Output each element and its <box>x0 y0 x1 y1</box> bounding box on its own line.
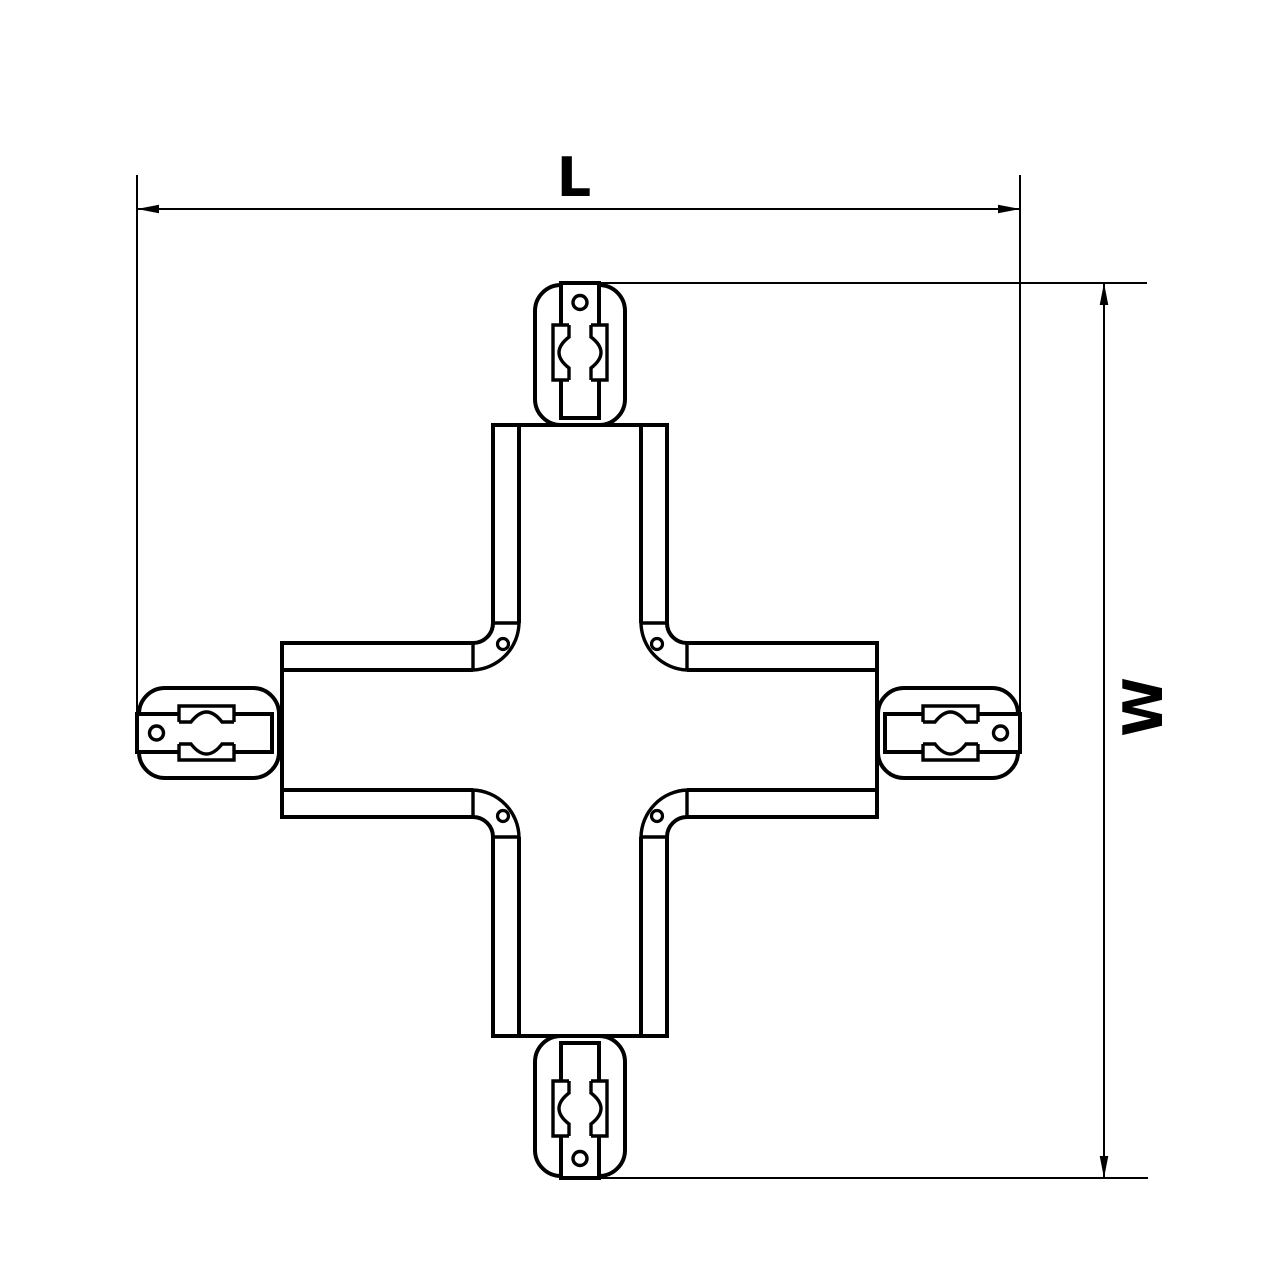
arrowhead-left <box>137 205 159 214</box>
contact-slot-right <box>923 744 978 760</box>
technical-drawing: L W <box>0 0 1280 1280</box>
connector-bottom <box>535 1036 625 1178</box>
dimension-label-W: W <box>1112 677 1175 737</box>
contact-slot-left <box>923 706 978 722</box>
cross-body <box>282 425 877 1036</box>
drawing-lines <box>137 175 1148 1178</box>
arrowhead-down <box>1100 1156 1109 1178</box>
connector-right <box>878 688 1020 778</box>
cross-outline <box>282 425 877 1036</box>
contact-slot-right <box>179 706 234 722</box>
arrowhead-right <box>998 205 1020 214</box>
dimension-label-L: L <box>557 146 591 209</box>
contact-slot-left <box>591 1081 607 1136</box>
tongue-hole <box>573 1152 587 1166</box>
arrowhead-up <box>1100 283 1109 305</box>
tongue-hole <box>150 726 164 740</box>
contact-slot-left <box>179 744 234 760</box>
connector-left <box>137 688 279 778</box>
contact-slot-left <box>553 325 569 380</box>
contact-slot-right <box>553 1081 569 1136</box>
connector-top <box>535 283 625 425</box>
tongue-hole <box>573 296 587 310</box>
tongue-hole <box>994 726 1008 740</box>
contact-slot-right <box>591 325 607 380</box>
